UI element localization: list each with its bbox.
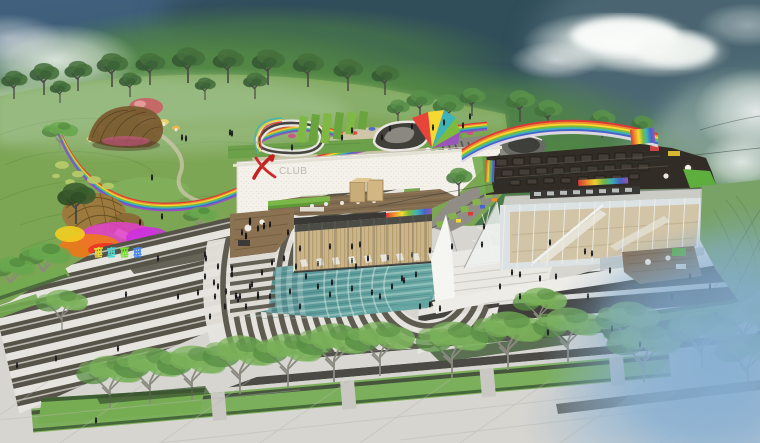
svg-text:CLUB: CLUB xyxy=(279,166,307,177)
